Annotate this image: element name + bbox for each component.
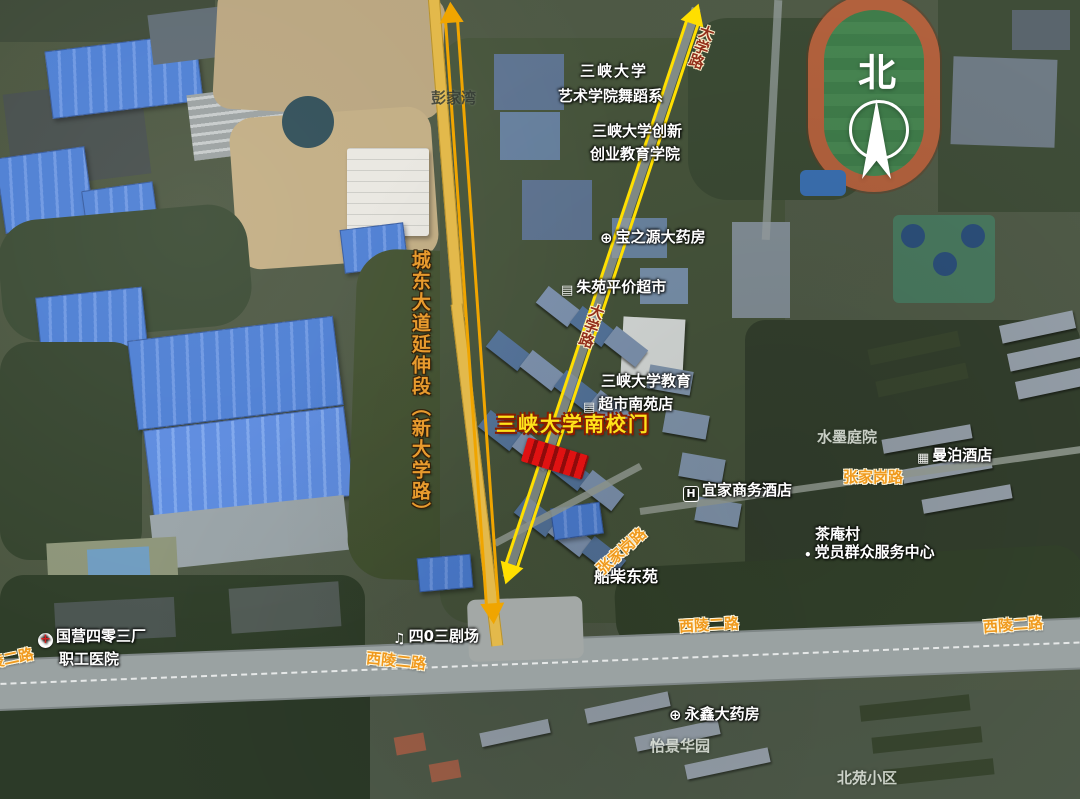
building	[229, 581, 342, 634]
pharmacy-icon: ⊕	[669, 707, 682, 724]
red-roof	[429, 760, 462, 783]
poi-hotel-manbo: ▦曼泊酒店	[917, 447, 992, 467]
poi-pharmacy-yongxin: ⊕永鑫大药房	[669, 706, 760, 724]
building-row	[999, 310, 1076, 343]
apartment-row	[646, 364, 693, 395]
apartment-row	[514, 496, 558, 537]
road-lane-line	[0, 640, 1080, 685]
pond	[282, 96, 334, 148]
poi-art-college: 艺术学院舞蹈系	[558, 88, 663, 105]
building	[732, 222, 790, 318]
satellite-map: 北 城东大道延伸段（新大学路） 大学路 大学路 三峡大学南校门 三峡大学 艺术学…	[0, 0, 1080, 799]
forest	[688, 18, 870, 200]
apartment-row	[548, 516, 592, 557]
compass-north-label: 北	[858, 42, 896, 97]
road-vertical	[762, 0, 783, 240]
building-row	[1015, 366, 1080, 399]
building	[1012, 10, 1070, 50]
apartment-row	[582, 536, 626, 577]
campus-building	[494, 54, 564, 110]
poi-hospital-403: 职工医院	[59, 651, 119, 668]
apartment-row	[570, 306, 614, 347]
road-label-xiling-center: 西陵二路	[679, 615, 740, 635]
court-circle	[961, 224, 985, 248]
xiling-2nd-road	[0, 618, 1080, 709]
poi-pharmacy-baozhiyuan: ⊕宝之源大药房	[600, 229, 706, 247]
forest	[938, 0, 1080, 212]
chengdong-avenue	[451, 303, 504, 646]
road-label-xiling-edge: 西陵二路	[0, 646, 35, 675]
apartment-row	[478, 410, 522, 451]
building-row	[684, 747, 770, 779]
building-icon: ▦	[917, 452, 929, 467]
compass: 北	[846, 42, 908, 184]
white-building	[621, 316, 686, 377]
building-row	[871, 726, 982, 753]
poi-chuanchai-dongyuan: 船柴东苑	[594, 568, 658, 586]
apartment-row	[694, 496, 741, 527]
building-row	[881, 424, 972, 453]
road-label-zhangjiagang: 张家岗路	[843, 469, 903, 486]
trees	[346, 248, 479, 582]
red-highlight-box	[521, 437, 590, 480]
daxue-road	[503, 7, 701, 579]
hotel-icon: H	[683, 486, 699, 502]
building-row	[859, 694, 970, 721]
dot-icon: •	[804, 549, 812, 563]
parking-lot	[186, 81, 309, 161]
arrow-shaft	[444, 15, 501, 611]
poi-theater-403: ♫四0三剧场	[393, 628, 479, 647]
campus-building	[522, 180, 592, 240]
photo-grain	[0, 0, 1080, 799]
road-label-xiling-left: 西陵二路	[365, 650, 426, 673]
chengdong-avenue	[427, 0, 465, 318]
arrow-shaft	[503, 15, 702, 574]
daxue-road-label-mid: 大学路	[575, 301, 606, 349]
apartment-row	[588, 390, 632, 431]
two-way-arrow-daxue-road	[493, 0, 711, 588]
poi-chaan-village: 茶庵村	[815, 526, 860, 543]
blue-roof	[87, 546, 151, 593]
building	[950, 56, 1057, 148]
warehouse-roof	[340, 222, 409, 273]
apartment-row	[604, 326, 648, 367]
supermarket-icon: ▤	[561, 284, 573, 299]
two-way-arrow-chengdong	[437, 1, 506, 625]
road-label-xiling-right: 西陵二路	[982, 615, 1043, 636]
poi-art-college: 三峡大学	[580, 63, 648, 80]
poi-hospital-403: +国营四零三厂	[38, 628, 146, 648]
apartment-row	[554, 370, 598, 411]
forest	[0, 0, 215, 42]
poi-pengjiawan: 彭家湾	[431, 90, 476, 107]
poi-shuimo-courtyard: 水墨庭院	[817, 429, 877, 446]
forest	[0, 342, 142, 560]
campus-building	[500, 112, 560, 160]
trees	[0, 201, 255, 344]
arrow-head-down-icon	[480, 602, 505, 625]
forest	[0, 695, 370, 799]
residential-area	[745, 320, 1080, 620]
construction-site	[212, 0, 446, 120]
building-row	[883, 758, 994, 785]
warehouse-roof	[35, 287, 147, 356]
poi-innovation-college: 三峡大学创新	[592, 123, 682, 140]
forest	[0, 575, 365, 697]
zhangjiagang-road	[640, 446, 1080, 515]
road-extension-label: 城东大道延伸段（新大学路）	[408, 250, 430, 523]
supermarket-icon: ▤	[583, 401, 595, 416]
apartment-row	[580, 470, 624, 511]
hospital-icon: +	[38, 633, 53, 648]
warehouse-roof	[0, 146, 95, 234]
blue-roof	[417, 554, 474, 593]
daxue-road-label-top: 大学路	[685, 22, 716, 70]
building-row	[867, 331, 960, 366]
poi-beiyuan-community: 北苑小区	[837, 770, 897, 787]
building-row	[921, 484, 1012, 513]
warehouse-roof	[127, 316, 343, 431]
pool	[800, 170, 846, 196]
apartment-row	[662, 408, 709, 439]
building	[54, 597, 176, 643]
building-row	[479, 719, 550, 747]
music-note-icon: ♫	[393, 631, 406, 647]
white-building	[347, 148, 429, 236]
apartment-row	[536, 286, 580, 327]
poi-yijing-garden: 怡景华园	[650, 738, 710, 755]
campus-grounds	[440, 38, 785, 623]
warehouse-roof	[147, 1, 270, 65]
apartment-row	[678, 452, 725, 483]
court-circle	[901, 224, 925, 248]
residential-area	[355, 690, 1080, 799]
building-row	[634, 719, 720, 751]
poi-edu-supermarket: 三峡大学教育	[601, 373, 691, 390]
poi-innovation-college: 创业教育学院	[590, 146, 680, 163]
apartment-row	[486, 330, 530, 371]
road-junction	[467, 596, 584, 662]
apartment-row	[520, 350, 564, 391]
blue-roof	[550, 502, 604, 541]
pharmacy-icon: ⊕	[600, 230, 613, 247]
road-label-zhangjiagang-diagonal: 张家岗路	[594, 525, 650, 578]
poi-hotel-yijia: H宜家商务酒店	[683, 482, 792, 502]
building-row	[875, 363, 968, 398]
field	[46, 537, 179, 614]
arrow-head-down-icon	[494, 561, 523, 589]
campus-building	[612, 218, 667, 258]
sports-courts	[893, 215, 995, 303]
building-row	[584, 691, 670, 723]
south-gate-label: 三峡大学南校门	[496, 413, 650, 436]
warehouse-roof	[3, 78, 152, 190]
warehouse-roof	[150, 495, 350, 570]
poi-edu-supermarket: ▤超市南苑店	[583, 396, 673, 416]
arrow-head-up-icon	[681, 0, 710, 27]
court-circle	[933, 252, 957, 276]
warehouse-roof	[81, 181, 159, 237]
warehouse-roof	[143, 406, 354, 520]
poi-supermarket-zhuyuan: ▤朱苑平价超市	[561, 279, 666, 299]
building-row	[1007, 338, 1080, 371]
arrow-head-up-icon	[438, 1, 463, 24]
building-row	[901, 454, 992, 483]
warehouse-roof	[44, 33, 203, 119]
poi-chaan-village: •党员群众服务中心	[804, 544, 935, 563]
campus-building	[640, 268, 688, 304]
construction-site	[228, 105, 440, 271]
red-roof	[394, 733, 427, 756]
trees	[613, 544, 1080, 652]
